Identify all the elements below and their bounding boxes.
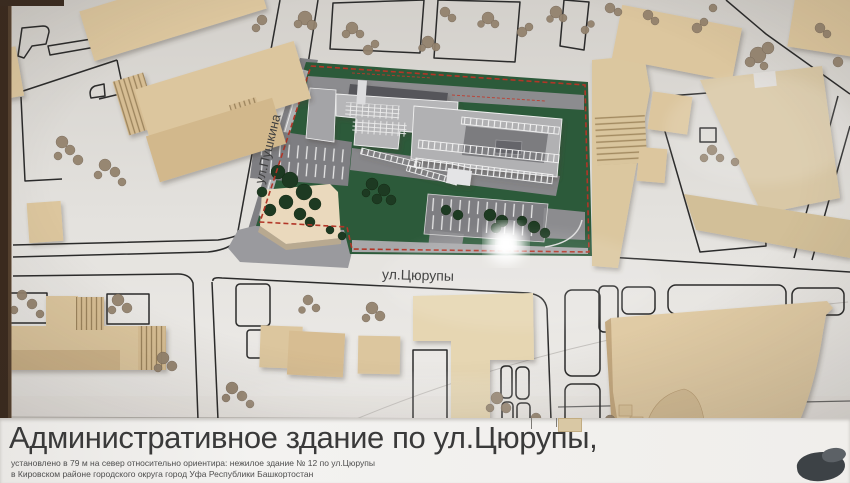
street-label-tsyurupy: ул.Цюрупы (382, 266, 454, 284)
model-photo: ул.Пушкина ул.Цюрупы Административное зд… (0, 0, 850, 483)
board-title: Административное здание по ул.Цюрупы, (9, 421, 597, 455)
wood-bottom-right (605, 301, 833, 431)
model-photo-svg: ул.Пушкина ул.Цюрупы (0, 0, 850, 483)
title-board: Административное здание по ул.Цюрупы, ус… (0, 418, 850, 483)
board-subtitle-line1: установлено в 79 м на север относительно… (11, 458, 375, 468)
board-subtitle-line2: в Кировском районе городского округа гор… (11, 469, 313, 479)
